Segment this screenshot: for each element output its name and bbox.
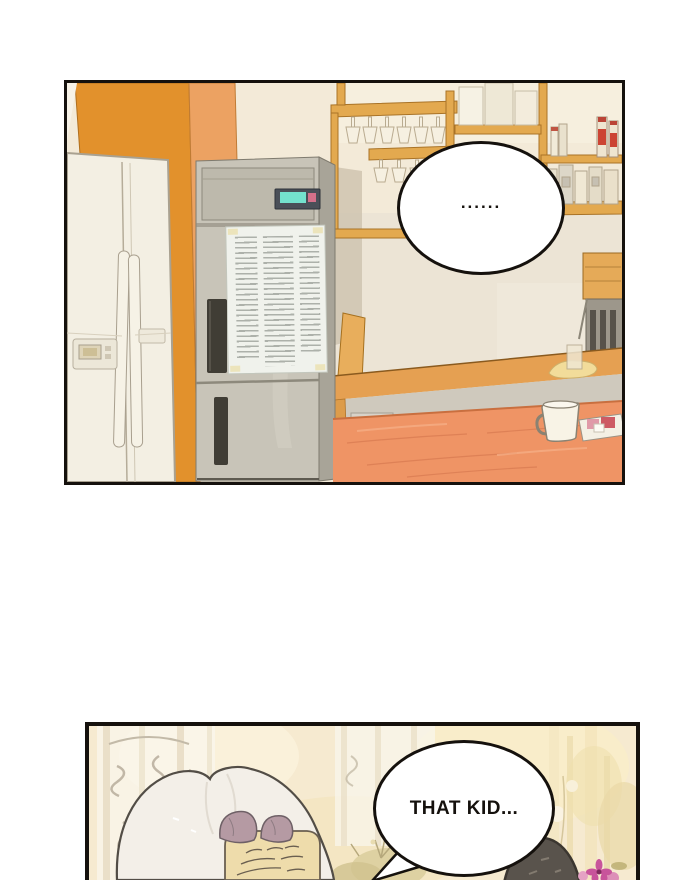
speech-bubble-that-kid: THAT KID... xyxy=(373,740,555,877)
menu-column xyxy=(235,236,259,360)
red-label-bottles xyxy=(597,117,618,157)
drinking-glass xyxy=(567,345,582,369)
spice-jars xyxy=(551,124,567,156)
speech-bubble-ellipsis: ...... xyxy=(397,141,565,275)
bokeh-flower xyxy=(566,780,578,792)
display-button xyxy=(308,193,316,202)
cutting-board xyxy=(338,313,365,381)
fridge-menu-lines xyxy=(229,231,323,369)
menu-column xyxy=(299,235,321,353)
comic-page: ...... xyxy=(0,0,700,880)
bubble-text: THAT KID... xyxy=(410,798,519,820)
kitchen-scene xyxy=(67,83,622,482)
panel-kitchen: ...... xyxy=(64,80,625,485)
bubble-text: ...... xyxy=(461,193,501,213)
inner-hair-right xyxy=(261,816,293,842)
menu-column xyxy=(263,236,295,367)
panel-grandma: THAT KID... xyxy=(85,722,640,880)
fridge-handle-bottom xyxy=(214,397,228,465)
lcd-screen xyxy=(280,192,306,203)
white-fridge xyxy=(67,153,175,482)
